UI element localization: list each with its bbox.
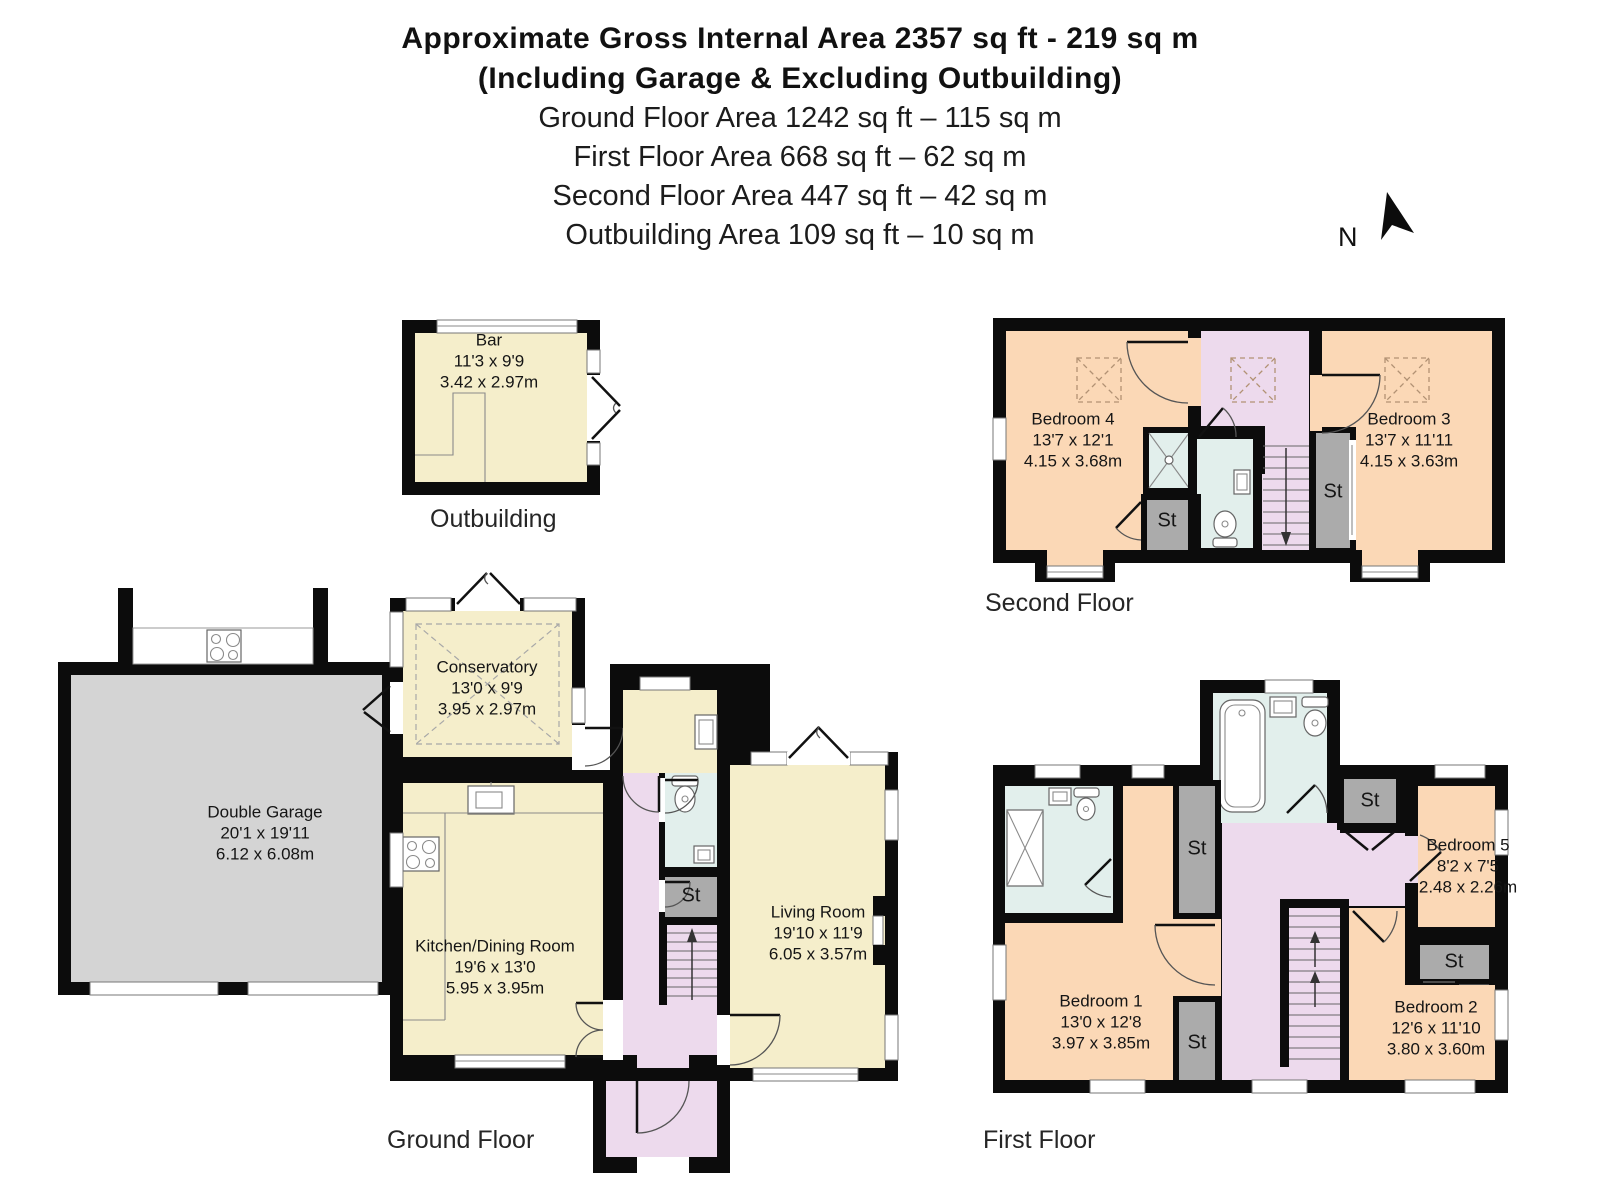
- area-line-first: First Floor Area 668 sq ft – 62 sq m: [20, 141, 1580, 174]
- room-label-living: Living Room19'10 x 11'96.05 x 3.57m: [769, 902, 867, 965]
- room-label-garage: Double Garage20'1 x 19'116.12 x 6.08m: [207, 802, 322, 865]
- storage-label: St: [1445, 951, 1464, 974]
- page-title-line1: Approximate Gross Internal Area 2357 sq …: [20, 22, 1580, 56]
- room-label-bar: Bar11'3 x 9'93.42 x 2.97m: [440, 330, 538, 393]
- room-label-bedroom3: Bedroom 313'7 x 11'114.15 x 3.63m: [1360, 409, 1458, 472]
- storage-label: St: [1324, 481, 1343, 504]
- storage-label: St: [1188, 1032, 1207, 1055]
- room-label-bedroom1: Bedroom 113'0 x 12'83.97 x 3.85m: [1052, 991, 1150, 1054]
- hob-icon: [207, 630, 241, 662]
- storage-label: St: [1158, 510, 1177, 533]
- porch: [606, 1081, 717, 1157]
- ensuite-shower-room: [1005, 786, 1123, 923]
- shower-icon: [1007, 810, 1043, 886]
- floor-label-ground: Ground Floor: [387, 1126, 534, 1155]
- room-label-conservatory: Conservatory13'0 x 9'93.95 x 2.97m: [436, 657, 537, 720]
- storage-label: St: [1361, 790, 1380, 813]
- floor-label-outbuilding: Outbuilding: [430, 505, 556, 534]
- ground-floor-wc: [659, 773, 717, 867]
- outdoor-counter: [133, 628, 313, 664]
- storage-label: St: [682, 885, 701, 908]
- sink-icon: [695, 715, 717, 749]
- sink-icon: [694, 846, 714, 863]
- hob-icon: [403, 837, 439, 871]
- sink-icon: [1234, 470, 1250, 494]
- room-kitchen: [390, 782, 603, 1068]
- floor-label-second: Second Floor: [985, 589, 1134, 618]
- room-label-bedroom4: Bedroom 413'7 x 12'14.15 x 3.68m: [1024, 409, 1122, 472]
- sink-icon: [468, 782, 514, 814]
- first-floor-bathroom: [1213, 680, 1328, 823]
- area-line-ground: Ground Floor Area 1242 sq ft – 115 sq m: [20, 102, 1580, 135]
- toilet-icon: [1213, 511, 1237, 547]
- bath-icon: [1220, 700, 1265, 812]
- toilet-icon: [1302, 697, 1328, 736]
- rear-hall: [623, 677, 717, 773]
- storage-label: St: [1188, 838, 1207, 861]
- sink-icon: [1270, 697, 1296, 717]
- floorplan-page: Approximate Gross Internal Area 2357 sq …: [0, 0, 1600, 1200]
- floor-label-first: First Floor: [983, 1126, 1096, 1155]
- sink-icon: [1049, 788, 1071, 805]
- room-label-kitchen: Kitchen/Dining Room19'6 x 13'05.95 x 3.9…: [415, 936, 575, 999]
- page-title-line2: (Including Garage & Excluding Outbuildin…: [20, 62, 1580, 96]
- room-label-bedroom5: Bedroom 58'2 x 7'52.48 x 2.26m: [1419, 835, 1517, 898]
- north-label: N: [1338, 222, 1358, 253]
- fireplace-icon: [873, 896, 885, 965]
- room-label-bedroom2: Bedroom 212'6 x 11'103.80 x 3.60m: [1387, 997, 1485, 1060]
